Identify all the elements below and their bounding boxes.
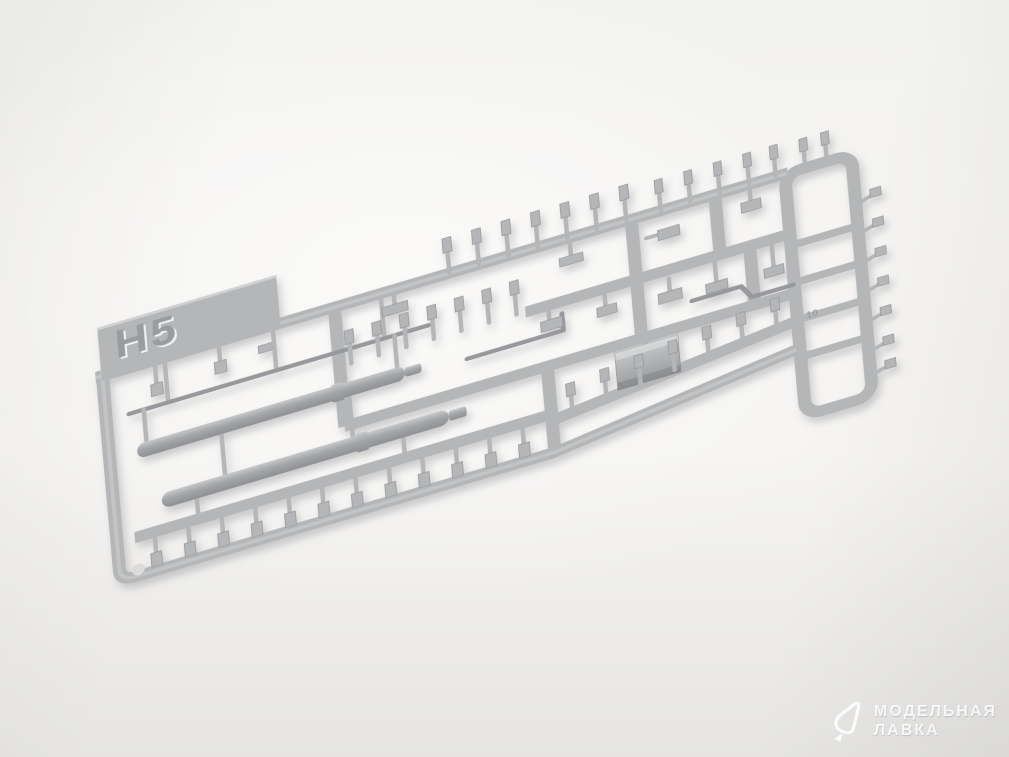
part-number: 10 [806,308,819,322]
watermark-text: МОДЕЛЬНАЯ ЛАВКА [874,703,997,741]
watermark-line2: ЛАВКА [874,722,997,741]
sprue-label-plate: H5 H5 [97,275,281,381]
watermark-logo-icon [829,701,865,743]
sprue-photo: 10 H5 H5 [0,0,1009,757]
product-photo: 10 H5 H5 [0,0,1009,757]
barrel-part-1 [137,359,423,461]
sprue: 10 H5 H5 [91,98,898,619]
sprue-ladder: 10 [782,117,898,415]
box-part [614,328,681,391]
watermark-line1: МОДЕЛЬНАЯ [874,703,997,722]
sprue-frame [95,167,807,583]
watermark: МОДЕЛЬНАЯ ЛАВКА [829,701,997,743]
